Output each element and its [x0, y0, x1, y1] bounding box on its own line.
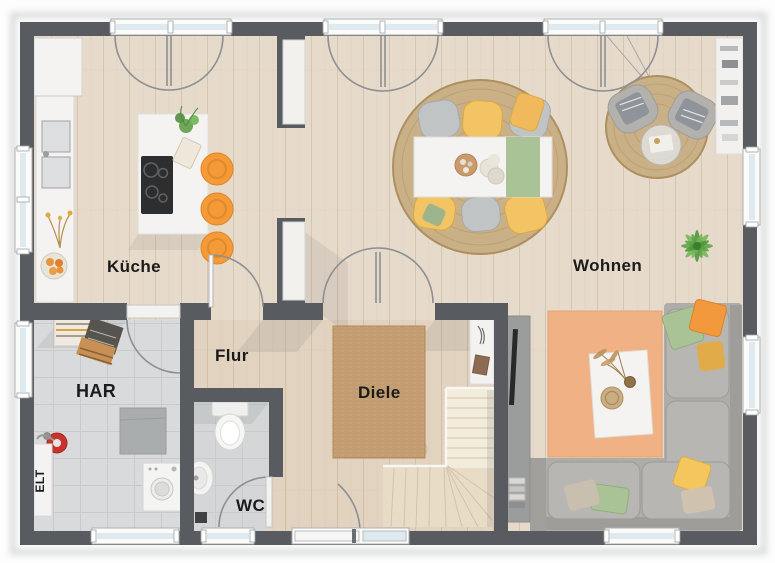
window-glass — [20, 328, 26, 392]
room-label-wc: WC — [236, 496, 265, 515]
window-glass — [97, 533, 174, 539]
wall-wc-top — [194, 388, 283, 402]
floor-plan-image: Küche Wohnen Flur Diele HAR WC ELT — [0, 0, 775, 563]
kitchen-door-leaf — [209, 255, 213, 307]
entry-sidelight — [363, 531, 406, 541]
floor-plan-svg: Küche Wohnen Flur Diele HAR WC ELT — [0, 0, 775, 563]
fern-plant — [681, 230, 713, 262]
entry-door-handle — [352, 529, 356, 543]
sink-basin-bottom — [42, 157, 70, 188]
kitchen-tall-cabinet — [34, 38, 82, 96]
room-label-hall: Flur — [215, 346, 249, 365]
table-tray — [648, 133, 674, 153]
builtin-cabinet-upper — [283, 40, 305, 124]
tv-board — [506, 316, 530, 522]
window-glass — [749, 154, 755, 220]
basin-faucet — [194, 476, 199, 481]
room-label-elt: ELT — [33, 469, 47, 492]
washing-machine — [143, 463, 181, 511]
window-glass — [749, 342, 755, 408]
window-glass — [610, 533, 674, 539]
builtin-cabinet-lower — [283, 222, 305, 300]
room-label-utility: HAR — [76, 381, 116, 401]
wall-left — [20, 22, 34, 545]
wall-tcap — [263, 303, 323, 320]
fruit-bowl — [41, 253, 67, 279]
wall-right — [743, 22, 757, 545]
wc-door-leaf — [266, 477, 272, 527]
room-label-kitchen: Küche — [107, 257, 161, 276]
entry-door — [292, 528, 409, 544]
wc-mat — [195, 512, 207, 523]
sofa-backrest-right — [730, 305, 742, 529]
sink-basin-top — [42, 121, 70, 152]
storage-box — [120, 408, 166, 454]
wall-kitchen-south-a — [34, 303, 127, 320]
table-runner — [506, 137, 540, 197]
har-door-leaf — [127, 305, 180, 318]
decor-bowl — [601, 387, 623, 409]
sofa-armrest — [530, 458, 546, 531]
wall-shelf-top-right — [716, 38, 743, 154]
window-glass — [207, 533, 249, 539]
wall-kitchen-south-b — [180, 303, 211, 320]
foyer-shelf — [470, 318, 494, 384]
room-label-foyer: Diele — [358, 383, 401, 402]
coffee-table — [589, 347, 653, 438]
faucet — [43, 151, 49, 157]
wall-wc-right — [269, 402, 283, 477]
entry-door-leaf — [295, 531, 359, 541]
sofa-area — [530, 299, 742, 531]
bar-stools — [201, 153, 233, 264]
cooktop — [141, 156, 173, 214]
room-label-living: Wohnen — [573, 256, 642, 275]
wall-foyer-top — [435, 303, 508, 320]
wall-har-right — [180, 320, 194, 531]
wall-foyer-right — [494, 320, 508, 531]
vase — [625, 377, 636, 388]
